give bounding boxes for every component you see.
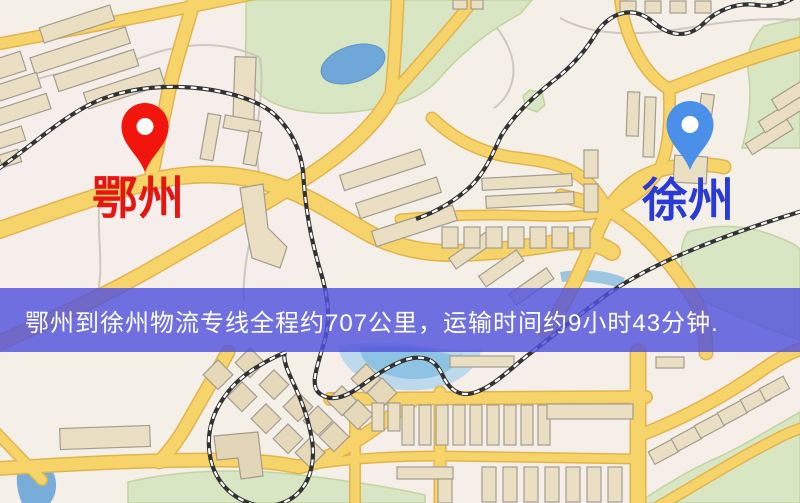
route-info-banner: 鄂州到徐州物流专线全程约707公里，运输时间约9小时43分钟. bbox=[0, 288, 800, 352]
map-canvas: 鄂州 徐州 bbox=[0, 0, 800, 503]
destination-pin-hole bbox=[682, 116, 699, 133]
route-info-text: 鄂州到徐州物流专线全程约707公里，运输时间约9小时43分钟. bbox=[25, 303, 719, 338]
origin-pin-hole bbox=[137, 118, 154, 135]
map-view: 鄂州 徐州 鄂州到徐州物流专线全程约707公里，运输时间约9小时43分钟. bbox=[0, 0, 800, 503]
destination-label: 徐州 bbox=[641, 174, 734, 226]
origin-label: 鄂州 bbox=[92, 172, 184, 224]
